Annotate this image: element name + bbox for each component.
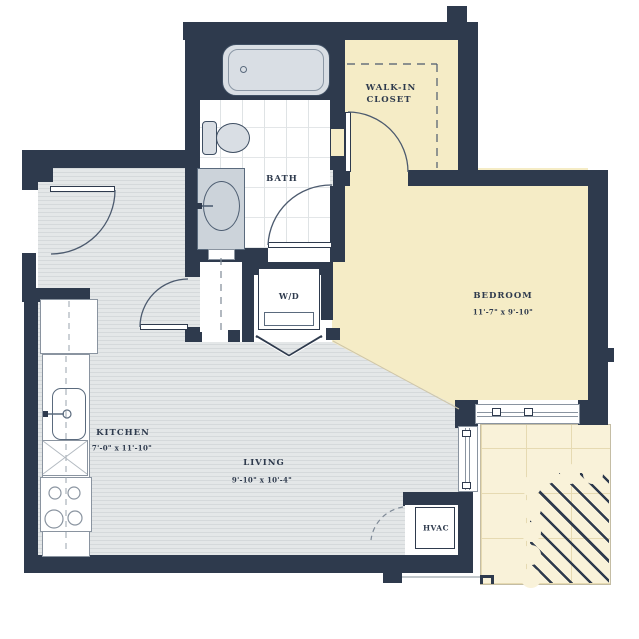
- wall-bedroom-top-left: [333, 170, 350, 186]
- hall-closet-floor: [200, 255, 242, 342]
- wall-hallcloset-laundry: [242, 275, 254, 342]
- window-frame-line: [477, 416, 578, 417]
- bedroom-dims: 11'-7" x 9'-10": [473, 308, 533, 317]
- washer-dryer-drawer: [264, 312, 314, 326]
- window-mullion: [524, 408, 533, 416]
- balcony-edge-line: [402, 576, 480, 578]
- wall-top: [183, 22, 467, 40]
- window-mullion: [492, 408, 501, 416]
- wall-hallcloset-stub-right: [228, 330, 240, 342]
- wall-bath-east-lower: [330, 186, 345, 248]
- bath-threshold: [208, 249, 235, 260]
- wall-bottom-step: [383, 573, 402, 583]
- living-label: LIVING: [243, 458, 285, 468]
- hatch-scallop: [537, 464, 557, 484]
- hatch-scallop: [521, 545, 541, 565]
- kitchen-label: KITCHEN: [96, 428, 150, 438]
- closet-floor: [345, 40, 458, 170]
- hall-closet-door: [140, 324, 188, 330]
- floor-plan: WALK-IN CLOSET BATH BEDROOM 11'-7" x 9'-…: [0, 0, 639, 639]
- wall-hall-top: [22, 150, 185, 168]
- hatch-scallop: [521, 568, 541, 588]
- wall-hall-top-nub: [36, 168, 53, 182]
- bedroom-label: BEDROOM: [473, 291, 532, 301]
- wall-closet-east: [458, 22, 478, 182]
- hatch-scallop: [521, 499, 541, 519]
- refrigerator: [40, 299, 98, 354]
- wall-west-mid: [22, 253, 36, 288]
- closet-label-line1: WALK-IN: [366, 83, 417, 93]
- vanity-sink: [203, 181, 240, 231]
- wall-west-upper: [22, 150, 38, 190]
- balcony-hatch-area: [530, 473, 609, 583]
- kitchen-sink: [52, 388, 86, 440]
- wall-bedroom-top: [408, 170, 608, 186]
- walkin-closet-door: [345, 112, 351, 172]
- door-mullion: [462, 482, 471, 489]
- wall-bottom: [24, 555, 473, 573]
- living-dims: 9'-10" x 10'-4": [232, 476, 292, 485]
- stove: [40, 477, 92, 532]
- wall-bedroom-east: [588, 186, 608, 400]
- hatch-scallop: [583, 464, 603, 484]
- toilet-bowl: [216, 123, 250, 153]
- wall-hallcloset-stub-left: [188, 332, 202, 342]
- wall-bedroom-east-tab: [608, 348, 614, 362]
- wall-bedroom-se-block: [578, 400, 608, 425]
- hvac-label: HVAC: [423, 524, 449, 533]
- door-frame-line: [465, 428, 466, 490]
- closet-label-line2: CLOSET: [366, 95, 411, 105]
- laundry-label: W/D: [279, 291, 299, 301]
- kitchen-dims: 7'-0" x 11'-10": [92, 444, 152, 453]
- hatch-scallop: [560, 464, 580, 484]
- wall-west-lower: [24, 302, 38, 557]
- hatch-scallop: [521, 522, 541, 542]
- wall-bath-south-east-jamb: [330, 248, 345, 262]
- entry-door: [50, 186, 115, 192]
- wall-top-step: [447, 6, 467, 22]
- balcony-corner-bracket: [480, 575, 483, 584]
- toilet-tank: [202, 121, 217, 155]
- bath-door: [268, 242, 332, 248]
- bath-wall-niche: [331, 127, 344, 158]
- wall-laundry-east: [321, 275, 333, 320]
- wall-laundry-se-stub: [326, 328, 340, 340]
- bath-label: BATH: [266, 174, 298, 184]
- door-mullion: [462, 430, 471, 437]
- bathtub-drain: [240, 66, 247, 73]
- dishwasher: [42, 440, 88, 476]
- wall-hvac-east: [458, 492, 473, 555]
- balcony-corner-bracket: [491, 575, 494, 584]
- door-frame-line: [469, 428, 470, 490]
